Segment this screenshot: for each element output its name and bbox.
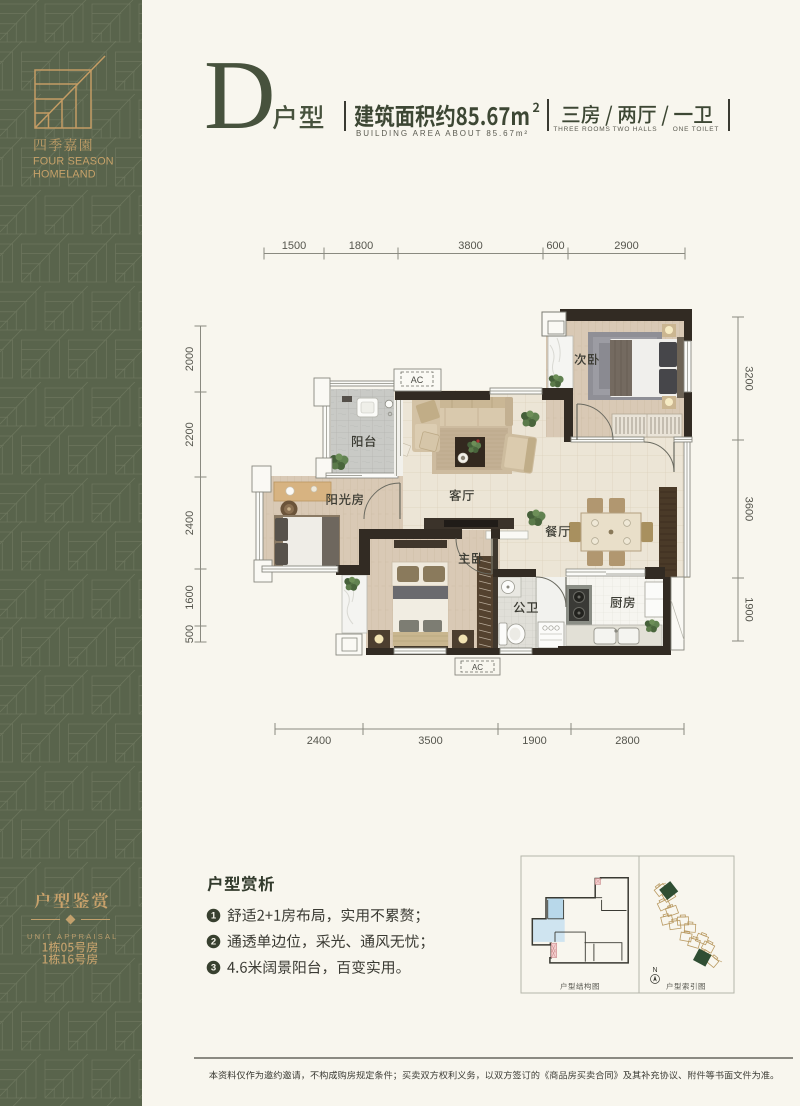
svg-text:HOMELAND: HOMELAND — [33, 169, 96, 181]
svg-text:FOUR SEASON: FOUR SEASON — [33, 156, 114, 168]
svg-text:1600: 1600 — [184, 585, 196, 609]
svg-text:2: 2 — [211, 937, 216, 948]
svg-text:ONE TOILET: ONE TOILET — [673, 126, 719, 133]
svg-text:1500: 1500 — [282, 240, 306, 252]
svg-text:N: N — [652, 967, 657, 974]
svg-text:UNIT APPRAISAL: UNIT APPRAISAL — [27, 932, 119, 941]
svg-text:500: 500 — [184, 625, 196, 643]
svg-text:3600: 3600 — [743, 497, 755, 521]
svg-text:2900: 2900 — [614, 240, 638, 252]
svg-text:3800: 3800 — [458, 240, 482, 252]
svg-text:2800: 2800 — [615, 735, 639, 747]
svg-text:3500: 3500 — [418, 735, 442, 747]
svg-text:2200: 2200 — [184, 422, 196, 446]
svg-text:2400: 2400 — [307, 735, 331, 747]
svg-text:2000: 2000 — [184, 347, 196, 371]
svg-text:THREE ROOMS: THREE ROOMS — [553, 126, 610, 133]
svg-text:AC: AC — [472, 663, 483, 672]
svg-text:1900: 1900 — [743, 597, 755, 621]
svg-text:1800: 1800 — [349, 240, 373, 252]
svg-text:3200: 3200 — [743, 366, 755, 390]
svg-text:2400: 2400 — [184, 511, 196, 535]
svg-text:3: 3 — [211, 963, 216, 974]
svg-text:600: 600 — [546, 240, 564, 252]
svg-text:TWO HALLS: TWO HALLS — [613, 126, 658, 133]
svg-text:AC: AC — [411, 375, 424, 385]
svg-text:1900: 1900 — [522, 735, 546, 747]
svg-text:1: 1 — [211, 911, 217, 922]
